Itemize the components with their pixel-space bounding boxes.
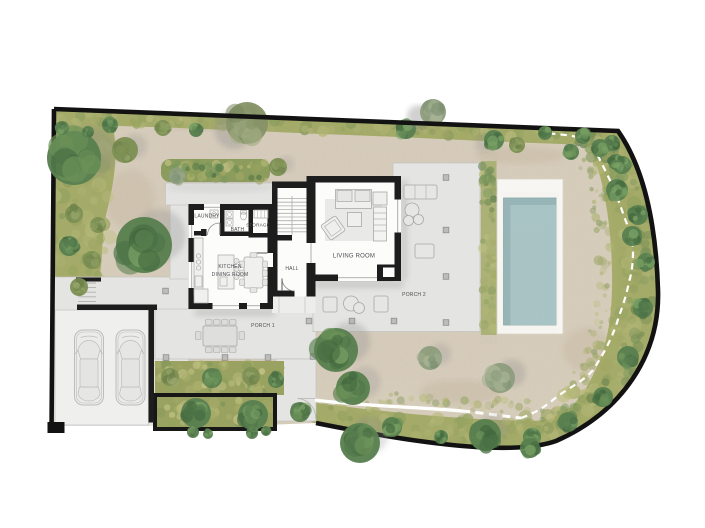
svg-text:KITCHEN: KITCHEN (218, 264, 242, 270)
svg-text:STORAGE: STORAGE (246, 223, 270, 228)
svg-text:PORCH 1: PORCH 1 (251, 323, 275, 329)
svg-text:HALL: HALL (285, 266, 298, 272)
svg-text:PORCH 2: PORCH 2 (402, 292, 426, 298)
svg-text:LIVING ROOM: LIVING ROOM (333, 254, 375, 260)
svg-text:LAUNDRY: LAUNDRY (194, 214, 220, 220)
svg-text:BATH: BATH (231, 227, 245, 233)
svg-text:DINING ROOM: DINING ROOM (212, 272, 249, 278)
